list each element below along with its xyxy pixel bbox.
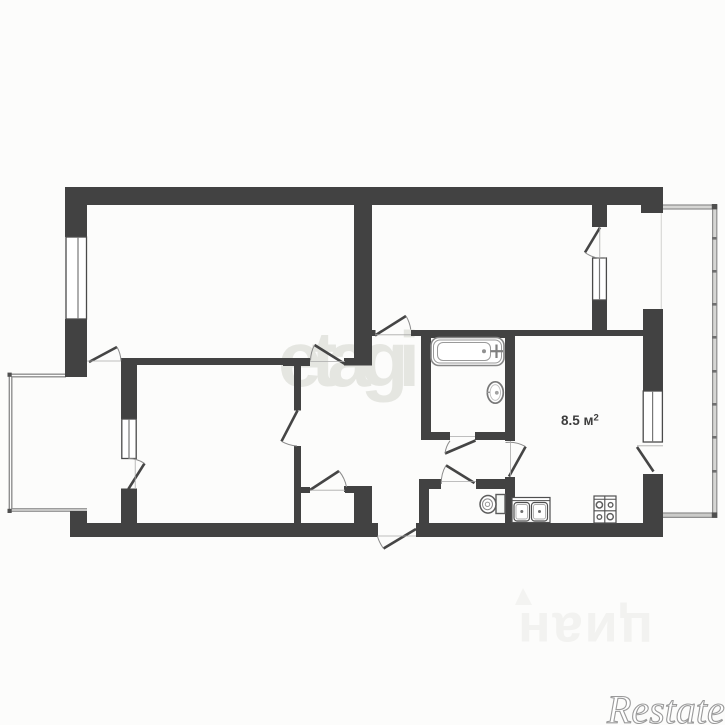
svg-text:Restate: Restate: [606, 687, 725, 725]
svg-text:циан: циан: [516, 601, 653, 661]
svg-text:8.5 м2: 8.5 м2: [561, 413, 599, 429]
